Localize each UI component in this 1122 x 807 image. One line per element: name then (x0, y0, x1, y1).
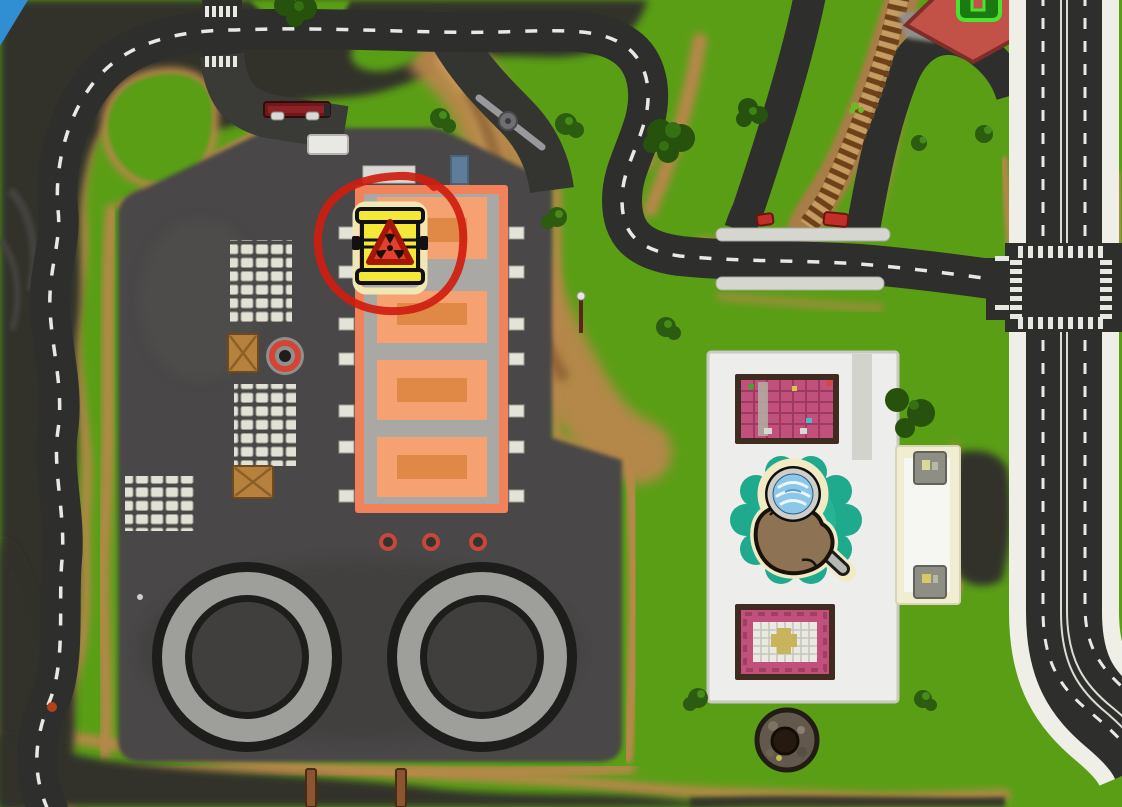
rail-buffer-stop-right (823, 212, 848, 227)
store-room-south (735, 604, 835, 680)
bush (911, 135, 927, 151)
game-map-viewport[interactable] (0, 0, 1122, 807)
crossing-bar-north (716, 228, 890, 241)
rail-buffer-stop-left (756, 213, 773, 226)
crate-north (228, 334, 258, 372)
fuel-tank-east (387, 562, 577, 752)
pallet-cluster-north (230, 240, 292, 323)
annex-pad-north (914, 452, 946, 484)
crossing-bar-south (716, 277, 884, 290)
game-map (0, 0, 1122, 807)
platform-speck (137, 594, 143, 600)
shop-glyph-notch (972, 0, 984, 10)
store-annex (896, 446, 960, 604)
red-debris (47, 702, 57, 712)
barrel-clamp-left (352, 236, 360, 250)
pallet-cluster-west (125, 476, 195, 531)
pallet-cluster-mid (234, 384, 296, 466)
fuel-tank-west (152, 562, 342, 752)
red-truck (264, 102, 330, 120)
bush (975, 125, 993, 143)
valve-wheel (266, 337, 304, 375)
crate-south (233, 466, 273, 498)
white-van (308, 135, 348, 154)
well (757, 710, 817, 770)
hazard-barrel-marker[interactable] (352, 205, 428, 291)
store-right-wing (852, 354, 872, 460)
annex-pad-south (914, 566, 946, 598)
barrel-bottom-band (357, 270, 423, 283)
intersection-west-stub (986, 258, 1012, 320)
barrel-clamp-right (420, 236, 428, 250)
warehouse-roof-vent-blue (451, 156, 468, 184)
store-room-north (735, 374, 839, 444)
